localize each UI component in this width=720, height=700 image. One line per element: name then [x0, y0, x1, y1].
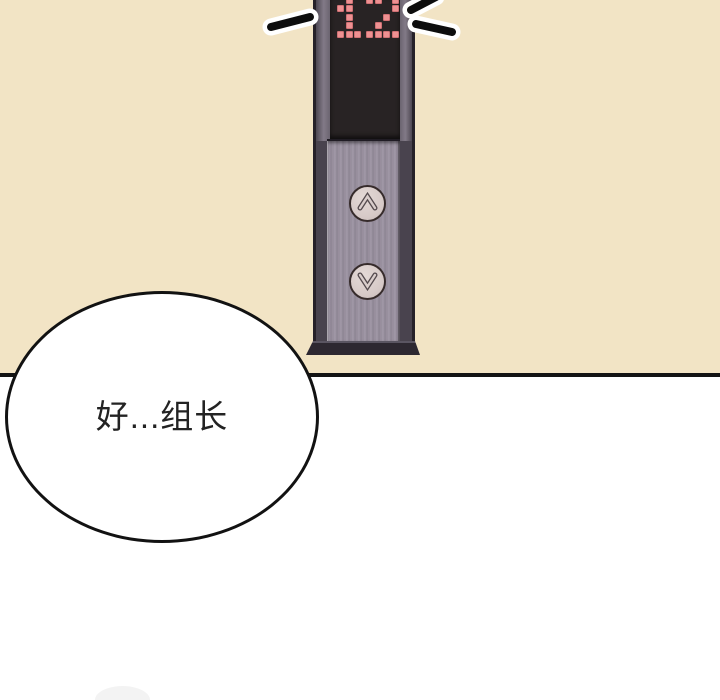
display-dot — [346, 0, 353, 4]
panel-base-bevel — [305, 341, 421, 355]
display-dot — [346, 22, 353, 29]
display-dot — [375, 22, 382, 29]
chevron-up-icon — [351, 186, 384, 222]
chevron-down-icon — [351, 264, 384, 300]
panel-side-trim-right — [400, 0, 412, 141]
display-dot — [346, 5, 353, 12]
display-dot — [383, 31, 390, 38]
display-dot — [392, 31, 399, 38]
elevator-call-panel — [305, 0, 421, 356]
display-dot — [354, 31, 361, 38]
display-dot — [366, 31, 373, 38]
display-dot — [383, 14, 390, 21]
elevator-up-button[interactable] — [349, 185, 386, 222]
elevator-down-button[interactable] — [349, 263, 386, 300]
floor-number-display — [330, 0, 400, 139]
display-dot — [346, 14, 353, 21]
comic-panel: 好...组长 — [0, 0, 720, 700]
display-dot — [366, 0, 373, 4]
display-dot — [392, 0, 399, 4]
display-dot — [392, 5, 399, 12]
display-dot — [337, 5, 344, 12]
display-dot — [346, 31, 353, 38]
display-dot — [375, 0, 382, 4]
display-dot — [337, 31, 344, 38]
display-dot — [375, 31, 382, 38]
speech-text: 好...组长 — [96, 397, 229, 437]
speech-bubble: 好...组长 — [5, 291, 319, 543]
next-panel-hint-shape — [95, 686, 150, 700]
button-plate — [327, 139, 400, 341]
panel-side-trim-left — [316, 0, 330, 141]
